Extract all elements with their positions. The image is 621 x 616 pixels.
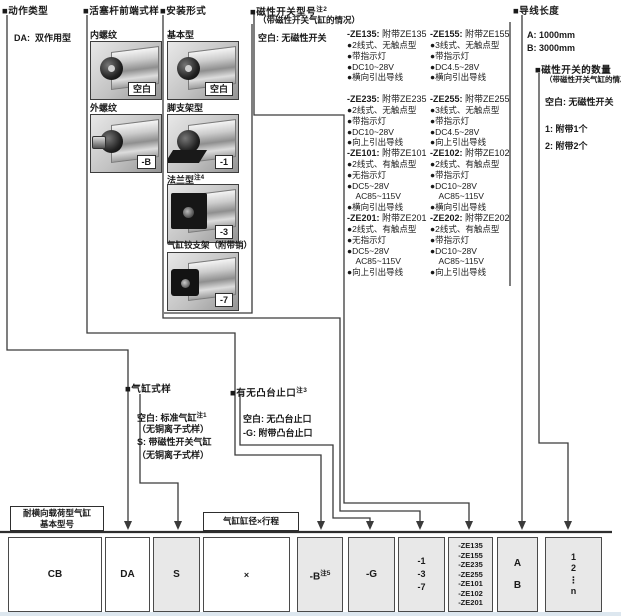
switch-feature: ●2线式、有触点型 bbox=[347, 159, 433, 170]
switch-entry-ze101: -ZE101: 附带ZE101 ●2线式、有触点型 ●无指示灯 ●DC5~28V… bbox=[347, 147, 433, 213]
switch-feature: ●DC4.5~28V bbox=[430, 127, 516, 138]
switch-feature: ●向上引出导线 bbox=[430, 267, 516, 278]
boss-option: -G: 附带凸台止口 bbox=[243, 426, 313, 439]
code-box-s: S bbox=[153, 537, 200, 612]
cylinder-photo-basic: 空白 bbox=[167, 41, 239, 100]
switch-feature: ●2线式、有触点型 bbox=[430, 224, 516, 235]
note-superscript: 注4 bbox=[194, 174, 204, 181]
code-lead-b: B bbox=[514, 575, 521, 597]
code-qty-ellipsis: ⋮ bbox=[569, 575, 578, 587]
switch-entry-ze135: -ZE135: 附带ZE135 ●2线式、无触点型 ●带指示灯 ●DC10~28… bbox=[347, 28, 433, 83]
cylinder-photo-clevis-bracket: -7 bbox=[167, 252, 239, 311]
option-code-badge: -B bbox=[137, 155, 157, 169]
rod-end-option-label: 内螺纹 bbox=[90, 28, 117, 41]
note-superscript: 注1 bbox=[197, 412, 207, 419]
switch-feature: ●DC5~28V bbox=[347, 246, 433, 257]
switch-qty-option: 1: 附带1个 bbox=[545, 122, 588, 135]
switch-feature: ●带指示灯 bbox=[347, 116, 433, 127]
cylinder-style-line: （无铜离子式样） bbox=[137, 448, 209, 461]
code-mount-7: -7 bbox=[417, 581, 425, 594]
switch-entry-ze235: -ZE235: 附带ZE235 ●2线式、无触点型 ●带指示灯 ●DC10~28… bbox=[347, 93, 433, 148]
switch-name: 附带ZE155 bbox=[465, 29, 510, 39]
code-cb: CB bbox=[48, 569, 62, 580]
code-ze155: -ZE155 bbox=[458, 551, 483, 561]
code-box-da: DA bbox=[105, 537, 150, 612]
flange-hole bbox=[183, 207, 194, 218]
switch-code: -ZE235: bbox=[347, 94, 380, 104]
switch-entry-header: -ZE202: 附带ZE202 bbox=[430, 212, 516, 224]
code-lead-a: A bbox=[514, 553, 521, 575]
note-superscript: 注2 bbox=[316, 6, 327, 13]
switch-name: 附带ZE102 bbox=[465, 148, 510, 158]
switch-entry-ze102: -ZE102: 附带ZE102 ●2线式、有触点型 ●带指示灯 ●DC10~28… bbox=[430, 147, 516, 213]
code-g: -G bbox=[366, 569, 377, 580]
switch-feature: ●向上引出导线 bbox=[347, 267, 433, 278]
note-superscript: 注3 bbox=[296, 387, 307, 394]
ordering-code-diagram: ■动作类型 DA: 双作用型 ■活塞杆前端式样 内螺纹 空白 外螺纹 -B ■安… bbox=[0, 0, 621, 616]
switch-feature: ●带指示灯 bbox=[430, 235, 516, 246]
code-mount-3: -3 bbox=[417, 568, 425, 581]
boss-title: ■有无凸台止口注3 bbox=[230, 384, 307, 399]
switch-feature: ●DC5~28V bbox=[347, 181, 433, 192]
switch-entry-header: -ZE155: 附带ZE155 bbox=[430, 28, 516, 40]
switch-feature: ●DC10~28V bbox=[347, 62, 433, 73]
mounting-option-label: 基本型 bbox=[167, 28, 194, 41]
code-b-wrap: -B注5 bbox=[310, 567, 331, 582]
mounting-option-label: 脚支架型 bbox=[167, 101, 203, 114]
code-b: -B bbox=[310, 571, 321, 582]
code-ze135: -ZE135 bbox=[458, 541, 483, 551]
note-superscript: 注5 bbox=[320, 570, 330, 577]
code-qty-1: 1 bbox=[571, 552, 576, 564]
action-type-title: ■动作类型 bbox=[2, 3, 48, 17]
base-model-label: 耐横向载荷型气缸 基本型号 bbox=[10, 506, 104, 531]
switch-feature: ●无指示灯 bbox=[347, 235, 433, 246]
switch-entry-header: -ZE235: 附带ZE235 bbox=[347, 93, 433, 105]
option-code-badge: 空白 bbox=[128, 82, 156, 96]
cylinder-style-line: S: 带磁性开关气缸 bbox=[137, 435, 212, 448]
switch-feature: ●无指示灯 bbox=[347, 170, 433, 181]
switch-feature: ●2线式、无触点型 bbox=[347, 40, 433, 51]
switch-feature: AC85~115V bbox=[347, 191, 433, 202]
code-mount-1: -1 bbox=[417, 555, 425, 568]
code-da: DA bbox=[120, 569, 134, 580]
switch-name: 附带ZE135 bbox=[382, 29, 427, 39]
switch-entry-header: -ZE102: 附带ZE102 bbox=[430, 147, 516, 159]
switch-code: -ZE101: bbox=[347, 148, 380, 158]
switch-qty-option: 2: 附带2个 bbox=[545, 139, 588, 152]
switch-code: -ZE135: bbox=[347, 29, 380, 39]
switch-feature: ●横向引出导线 bbox=[347, 72, 433, 83]
code-box-lead-length: A B bbox=[497, 537, 538, 612]
boss-option: 空白: 无凸台止口 bbox=[243, 412, 312, 425]
clevis-pin-hole bbox=[181, 279, 190, 288]
code-qty-n: n bbox=[571, 586, 577, 598]
switch-model-blank-option: 空白: 无磁性开关 bbox=[258, 31, 327, 44]
lead-wire-title: ■导线长度 bbox=[513, 3, 559, 17]
code-box-quantity: 1 2 ⋮ n bbox=[545, 537, 602, 612]
page-edge-strip bbox=[0, 612, 621, 616]
base-model-label-line2: 基本型号 bbox=[11, 519, 103, 530]
rod-end-title: ■活塞杆前端式样 bbox=[83, 3, 159, 17]
switch-feature: ●带指示灯 bbox=[430, 116, 516, 127]
cylinder-photo-internal-thread: 空白 bbox=[90, 41, 162, 100]
bore-stroke-label-text: 气缸缸径×行程 bbox=[204, 516, 298, 527]
switch-entry-ze202: -ZE202: 附带ZE202 ●2线式、有触点型 ●带指示灯 ●DC10~28… bbox=[430, 212, 516, 278]
switch-qty-subtitle: （带磁性开关气缸的情况） bbox=[545, 74, 621, 85]
switch-code: -ZE201: bbox=[347, 213, 380, 223]
switch-feature: ●DC4.5~28V bbox=[430, 62, 516, 73]
rod-end-option-label: 外螺纹 bbox=[90, 101, 117, 114]
switch-feature: ●DC10~28V bbox=[430, 181, 516, 192]
cylinder-photo-external-thread: -B bbox=[90, 114, 162, 173]
switch-code: -ZE202: bbox=[430, 213, 463, 223]
cylinder-style-title: ■气缸式样 bbox=[125, 381, 171, 395]
code-box-b: -B注5 bbox=[297, 537, 343, 612]
cylinder-photo-foot-bracket: -1 bbox=[167, 114, 239, 173]
cylinder-photo-flange: -3 bbox=[167, 184, 239, 243]
cylinder-style-line: （无铜离子式样） bbox=[137, 422, 209, 435]
switch-name: 附带ZE101 bbox=[382, 148, 427, 158]
switch-name: 附带ZE202 bbox=[465, 213, 510, 223]
switch-entry-ze255: -ZE255: 附带ZE255 ●3线式、无触点型 ●带指示灯 ●DC4.5~2… bbox=[430, 93, 516, 148]
switch-feature: ●2线式、有触点型 bbox=[430, 159, 516, 170]
option-code-badge: -7 bbox=[215, 293, 233, 307]
lead-wire-option: A: 1000mm bbox=[527, 30, 575, 40]
code-box-bore-stroke: × bbox=[203, 537, 290, 612]
boss-title-text: ■有无凸台止口 bbox=[230, 388, 296, 399]
code-box-switch-models: -ZE135 -ZE155 -ZE235 -ZE255 -ZE101 -ZE10… bbox=[448, 537, 493, 612]
option-code-badge: -3 bbox=[215, 225, 233, 239]
lead-wire-option: B: 3000mm bbox=[527, 43, 575, 53]
code-s: S bbox=[173, 569, 180, 580]
mounting-title: ■安装形式 bbox=[160, 3, 206, 17]
switch-qty-option: 空白: 无磁性开关 bbox=[545, 95, 614, 108]
switch-feature: ●DC10~28V bbox=[347, 127, 433, 138]
switch-entry-header: -ZE135: 附带ZE135 bbox=[347, 28, 433, 40]
switch-name: 附带ZE255 bbox=[465, 94, 510, 104]
base-model-label-line1: 耐横向载荷型气缸 bbox=[11, 508, 103, 519]
switch-feature: AC85~115V bbox=[347, 256, 433, 267]
code-bore-stroke: × bbox=[244, 570, 249, 580]
switch-code: -ZE102: bbox=[430, 148, 463, 158]
bore-stroke-label: 气缸缸径×行程 bbox=[203, 512, 299, 531]
option-code-badge: -1 bbox=[215, 155, 233, 169]
action-label: 双作用型 bbox=[35, 33, 71, 43]
code-ze102: -ZE102 bbox=[458, 589, 483, 599]
switch-feature: ●带指示灯 bbox=[347, 51, 433, 62]
switch-entry-ze155: -ZE155: 附带ZE155 ●3线式、无触点型 ●带指示灯 ●DC4.5~2… bbox=[430, 28, 516, 83]
action-type-item: DA: 双作用型 bbox=[14, 31, 71, 44]
switch-entry-header: -ZE101: 附带ZE101 bbox=[347, 147, 433, 159]
thread-hole bbox=[185, 65, 192, 72]
code-box-cb: CB bbox=[8, 537, 102, 612]
code-ze255: -ZE255 bbox=[458, 570, 483, 580]
switch-entry-ze201: -ZE201: 附带ZE201 ●2线式、有触点型 ●无指示灯 ●DC5~28V… bbox=[347, 212, 433, 278]
switch-feature: AC85~115V bbox=[430, 191, 516, 202]
switch-code: -ZE155: bbox=[430, 29, 463, 39]
code-qty-2: 2 bbox=[571, 563, 576, 575]
thread-hole bbox=[108, 65, 115, 72]
switch-feature: ●3线式、无触点型 bbox=[430, 40, 516, 51]
switch-model-subtitle: （带磁性开关气缸的情况） bbox=[258, 14, 360, 26]
code-ze235: -ZE235 bbox=[458, 560, 483, 570]
switch-name: 附带ZE235 bbox=[382, 94, 427, 104]
threaded-rod bbox=[92, 136, 106, 149]
switch-code: -ZE255: bbox=[430, 94, 463, 104]
switch-feature: ●2线式、有触点型 bbox=[347, 224, 433, 235]
switch-entry-header: -ZE255: 附带ZE255 bbox=[430, 93, 516, 105]
switch-feature: ●DC10~28V bbox=[430, 246, 516, 257]
switch-feature: ●带指示灯 bbox=[430, 51, 516, 62]
switch-feature: ●带指示灯 bbox=[430, 170, 516, 181]
switch-name: 附带ZE201 bbox=[382, 213, 427, 223]
code-ze201: -ZE201 bbox=[458, 598, 483, 608]
mounting-option-label: 气缸铰支架（附带销） bbox=[167, 239, 252, 251]
action-code: DA: bbox=[14, 33, 30, 43]
option-code-badge: 空白 bbox=[205, 82, 233, 96]
code-box-g: -G bbox=[348, 537, 395, 612]
code-ze101: -ZE101 bbox=[458, 579, 483, 589]
switch-feature: ●横向引出导线 bbox=[430, 72, 516, 83]
code-box-mounting: -1 -3 -7 bbox=[398, 537, 445, 612]
switch-feature: AC85~115V bbox=[430, 256, 516, 267]
switch-entry-header: -ZE201: 附带ZE201 bbox=[347, 212, 433, 224]
switch-feature: ●2线式、无触点型 bbox=[347, 105, 433, 116]
switch-feature: ●3线式、无触点型 bbox=[430, 105, 516, 116]
